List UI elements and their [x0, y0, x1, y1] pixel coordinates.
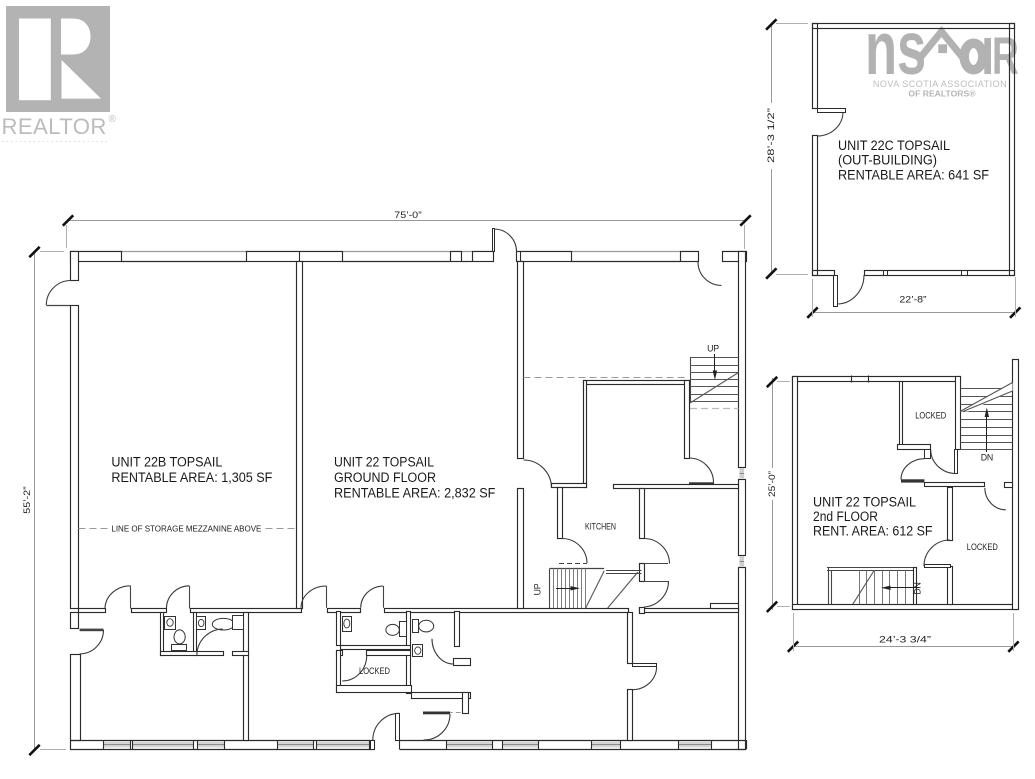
- svg-text:REALTOR: REALTOR: [2, 114, 107, 139]
- svg-text:25’-0”: 25’-0”: [767, 471, 778, 497]
- svg-text:GROUND FLOOR: GROUND FLOOR: [334, 470, 436, 486]
- svg-text:UP: UP: [533, 583, 543, 595]
- svg-text:ns: ns: [865, 6, 926, 91]
- svg-text:(OUT-BUILDING): (OUT-BUILDING): [838, 153, 937, 168]
- svg-text:RENTABLE AREA: 2,832 SF: RENTABLE AREA: 2,832 SF: [334, 485, 496, 501]
- svg-text:75’-0”: 75’-0”: [394, 210, 422, 221]
- svg-text:DN: DN: [981, 453, 993, 463]
- svg-text:24’-3 3/4”: 24’-3 3/4”: [879, 635, 931, 646]
- svg-text:22’-8”: 22’-8”: [899, 295, 926, 306]
- svg-text:LOCKED: LOCKED: [359, 666, 390, 676]
- svg-text:UP: UP: [707, 344, 719, 354]
- svg-text:RENTABLE AREA: 641 SF: RENTABLE AREA: 641 SF: [838, 167, 989, 182]
- svg-text:DN: DN: [913, 582, 923, 594]
- svg-text:LOCKED: LOCKED: [967, 542, 998, 552]
- svg-text:LOCKED: LOCKED: [915, 411, 946, 421]
- svg-text:55’-2”: 55’-2”: [22, 486, 33, 514]
- svg-text:UNIT 22B TOPSAIL: UNIT 22B TOPSAIL: [111, 454, 222, 470]
- svg-text:KITCHEN: KITCHEN: [585, 522, 616, 532]
- svg-text:RENT. AREA: 612 SF: RENT. AREA: 612 SF: [813, 524, 933, 540]
- svg-text:®: ®: [109, 114, 117, 125]
- svg-text:NOVA SCOTIA ASSOCIATION: NOVA SCOTIA ASSOCIATION: [873, 79, 1007, 89]
- svg-text:OF REALTORS®: OF REALTORS®: [908, 89, 976, 99]
- svg-text:28’-3 1/2”: 28’-3 1/2”: [766, 108, 777, 163]
- svg-text:LINE OF STORAGE MEZZANINE ABOV: LINE OF STORAGE MEZZANINE ABOVE: [111, 524, 261, 534]
- svg-text:UNIT 22 TOPSAIL: UNIT 22 TOPSAIL: [334, 454, 434, 470]
- svg-text:UNIT 22C TOPSAIL: UNIT 22C TOPSAIL: [838, 138, 950, 153]
- svg-text:RENTABLE AREA: 1,305 SF: RENTABLE AREA: 1,305 SF: [111, 470, 272, 486]
